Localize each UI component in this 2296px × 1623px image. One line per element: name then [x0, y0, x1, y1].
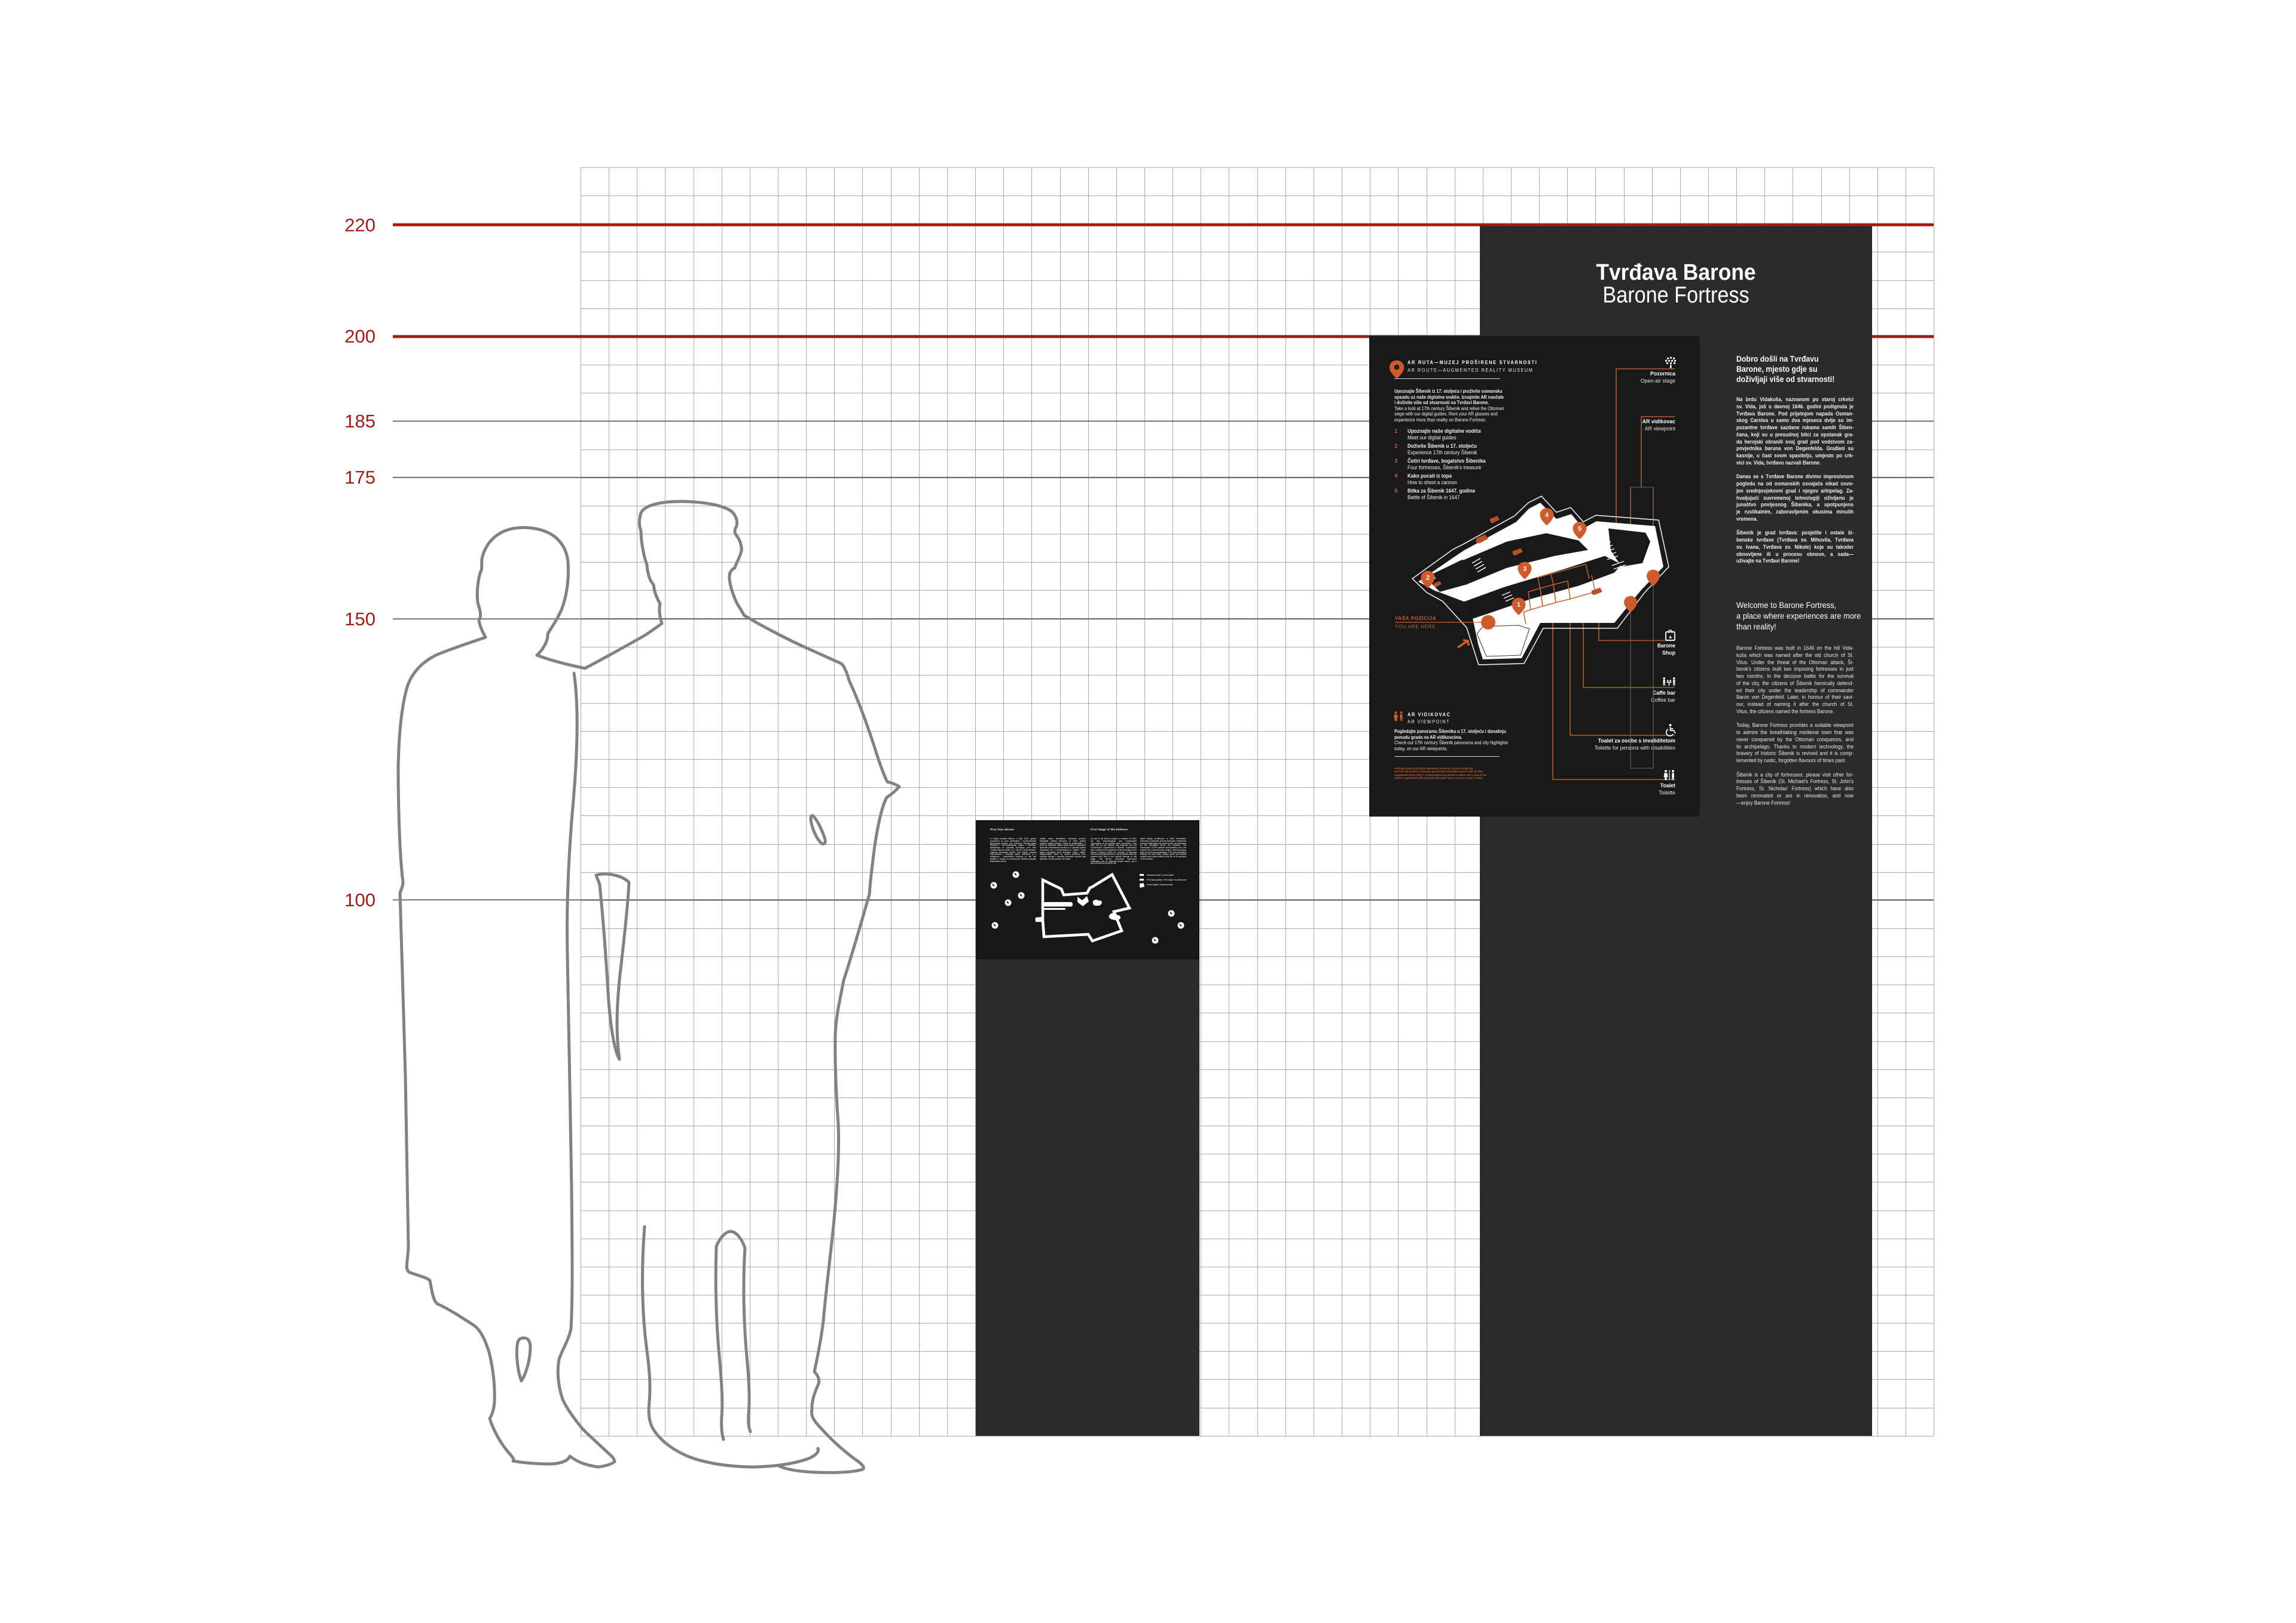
svg-text:4: 4: [1545, 512, 1549, 519]
svg-text:2: 2: [1426, 574, 1430, 582]
svg-text:5: 5: [1578, 525, 1581, 533]
svg-text:1: 1: [1517, 601, 1521, 609]
svg-text:3: 3: [1523, 566, 1526, 573]
